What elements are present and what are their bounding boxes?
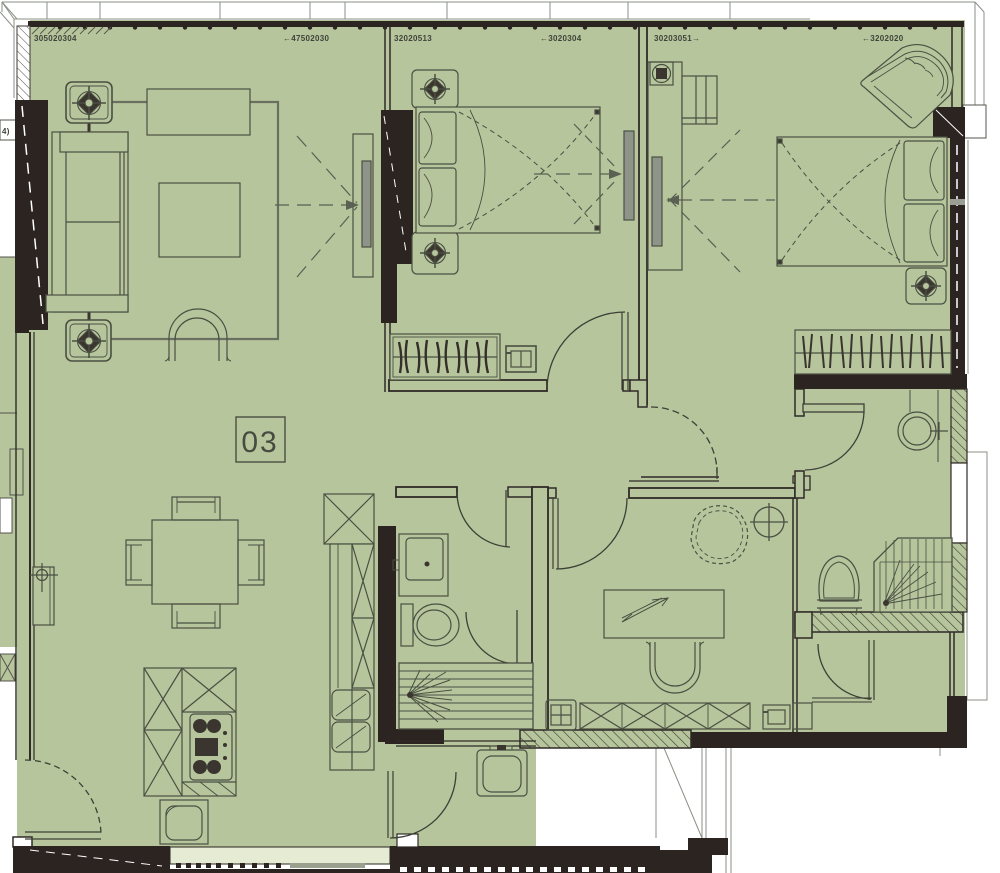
svg-text:←47502030: ←47502030: [283, 34, 330, 43]
svg-text:03: 03: [241, 426, 278, 459]
svg-text:←3202020: ←3202020: [862, 34, 904, 43]
svg-text:305020304: 305020304: [34, 34, 77, 43]
svg-text:←3020304: ←3020304: [540, 34, 582, 43]
svg-text:32020513: 32020513: [394, 34, 432, 43]
svg-text:4): 4): [2, 127, 10, 136]
svg-text:30203051→: 30203051→: [654, 34, 700, 43]
